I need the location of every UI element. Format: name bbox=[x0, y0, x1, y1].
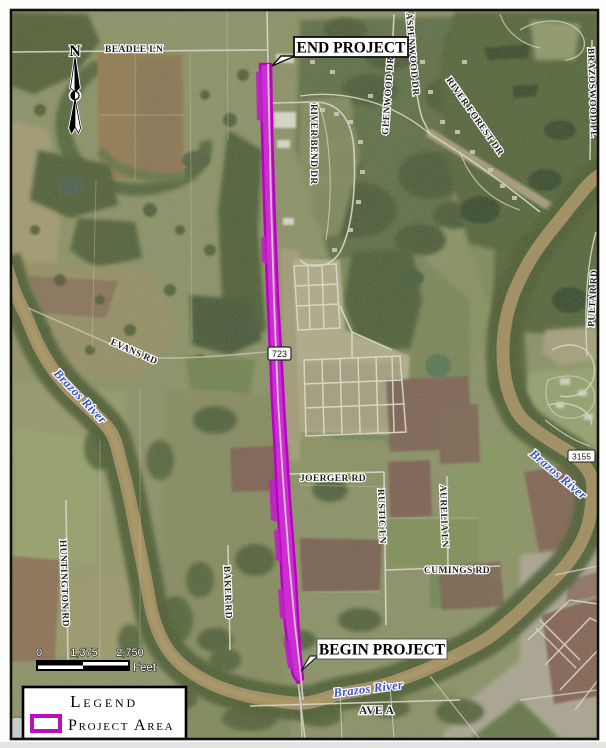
svg-text:RIVER BEND DR: RIVER BEND DR bbox=[308, 104, 318, 185]
svg-text:Legend: Legend bbox=[70, 692, 138, 711]
svg-text:END PROJECT: END PROJECT bbox=[297, 40, 407, 57]
svg-text:0: 0 bbox=[36, 647, 42, 659]
svg-text:Feet: Feet bbox=[133, 662, 157, 674]
svg-text:BAKER RD: BAKER RD bbox=[221, 566, 233, 619]
svg-text:BEADLE LN: BEADLE LN bbox=[105, 45, 163, 55]
svg-text:2,750: 2,750 bbox=[116, 647, 144, 659]
svg-text:RUSTIC LN: RUSTIC LN bbox=[375, 489, 387, 544]
svg-text:AVE A: AVE A bbox=[359, 705, 395, 717]
svg-text:Project Area: Project Area bbox=[68, 717, 174, 734]
svg-text:BEGIN PROJECT: BEGIN PROJECT bbox=[319, 642, 446, 659]
svg-text:JOERGER RD: JOERGER RD bbox=[300, 474, 366, 484]
svg-text:3155: 3155 bbox=[572, 452, 591, 462]
svg-text:CUMINGS RD: CUMINGS RD bbox=[424, 566, 490, 576]
svg-text:1,375: 1,375 bbox=[70, 647, 98, 659]
svg-text:723: 723 bbox=[272, 349, 287, 359]
